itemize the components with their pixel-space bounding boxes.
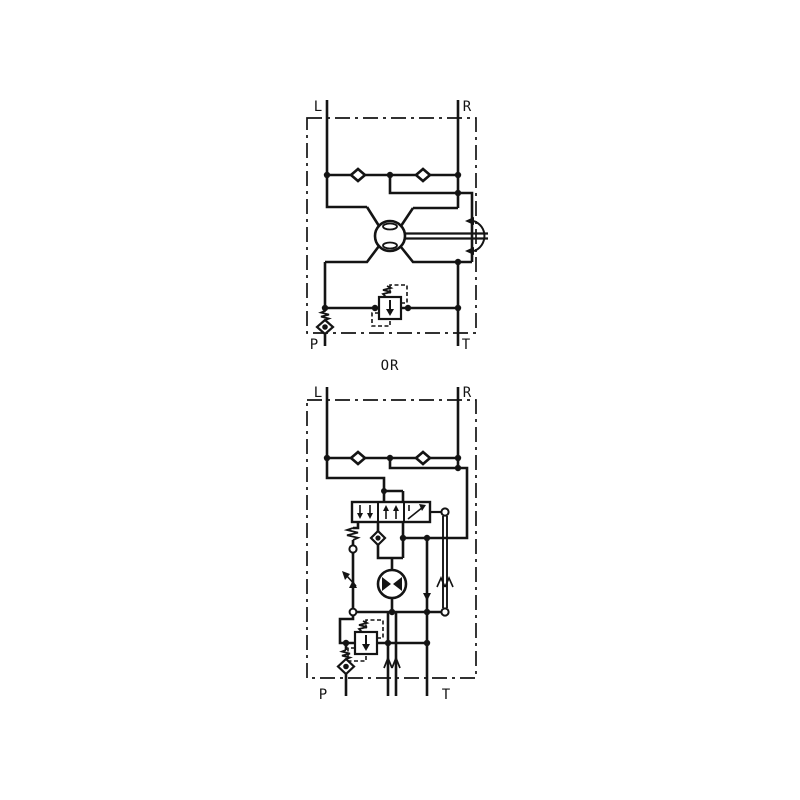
- port-label-P: P: [319, 687, 327, 703]
- check-valve-icon: [351, 452, 365, 464]
- port-label-T: T: [462, 337, 471, 353]
- check-valve-icon: [416, 452, 430, 464]
- check-valve-icon: [351, 169, 365, 181]
- top-diagram: L R P T: [307, 99, 488, 353]
- port-label-L: L: [314, 385, 322, 401]
- rotation-arrow-icon: [465, 217, 484, 255]
- steering-metering-unit-icon: [375, 221, 405, 251]
- hydraulic-schematic: L R P T OR: [0, 0, 800, 800]
- relief-valve-icon: [372, 285, 407, 326]
- port-label-T: T: [442, 687, 451, 703]
- port-label-R: R: [463, 385, 472, 401]
- relief-valve-icon: [348, 620, 383, 661]
- directional-control-valve-icon: [352, 502, 449, 522]
- bottom-diagram: L R P T: [307, 385, 476, 703]
- junction-dots: [324, 455, 461, 646]
- port-label-L: L: [314, 99, 322, 115]
- port-label-R: R: [463, 99, 472, 115]
- metering-motor-icon: [378, 570, 406, 598]
- schematic-page: L R P T OR: [0, 0, 800, 800]
- port-label-P: P: [310, 337, 318, 353]
- check-valve-icon: [416, 169, 430, 181]
- or-divider-label: OR: [381, 358, 400, 374]
- inlet-check-valve-icon: [338, 650, 354, 674]
- feedback-link-icon: [350, 516, 453, 616]
- inlet-check-valve-icon: [317, 308, 333, 346]
- ball-check-valve-icon: [371, 531, 385, 545]
